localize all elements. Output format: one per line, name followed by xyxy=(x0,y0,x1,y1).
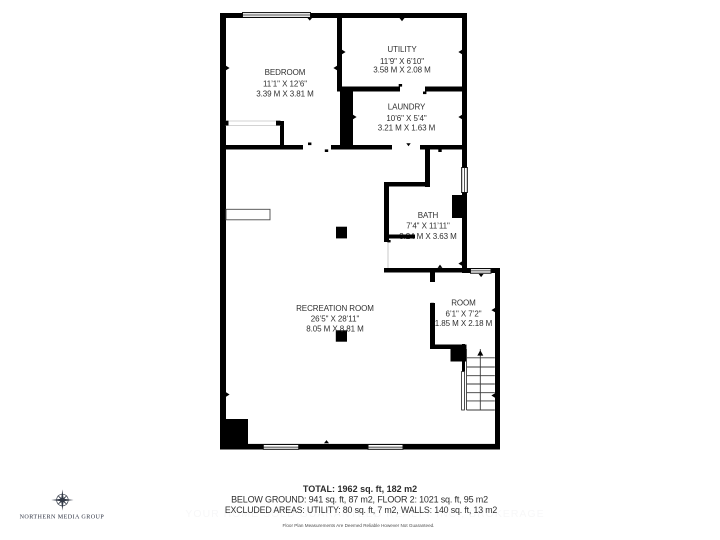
svg-text:10’6" X 5’4": 10’6" X 5’4" xyxy=(386,114,427,123)
svg-text:1.85 M X 2.18 M: 1.85 M X 2.18 M xyxy=(435,319,493,328)
svg-text:BELOW GROUND: 941 sq. ft, 87 m: BELOW GROUND: 941 sq. ft, 87 m2, FLOOR 2… xyxy=(231,495,488,505)
svg-text:3.58 M X 2.08 M: 3.58 M X 2.08 M xyxy=(373,66,431,75)
svg-text:LAUNDRY: LAUNDRY xyxy=(388,103,426,112)
svg-text:8.05 M X 8.81 M: 8.05 M X 8.81 M xyxy=(306,325,364,334)
svg-text:26’5" X 28’11": 26’5" X 28’11" xyxy=(311,315,360,324)
svg-text:ROOM: ROOM xyxy=(451,299,476,308)
svg-text:RECREATION ROOM: RECREATION ROOM xyxy=(296,304,374,313)
svg-text:YOUR HOME SOLD GUARANTEED REAL: YOUR HOME SOLD GUARANTEED REALTY INC., B… xyxy=(185,508,544,520)
svg-text:NORTHERN MEDIA GROUP: NORTHERN MEDIA GROUP xyxy=(20,514,105,520)
svg-text:UTILITY: UTILITY xyxy=(387,45,417,54)
svg-text:3.39 M X 3.81 M: 3.39 M X 3.81 M xyxy=(256,89,314,98)
svg-text:6’1" X 7’2": 6’1" X 7’2" xyxy=(446,309,482,318)
svg-text:11’1" X 12’6": 11’1" X 12’6" xyxy=(263,80,307,89)
svg-text:Floor Plan Measurements Are De: Floor Plan Measurements Are Deemed Relia… xyxy=(283,523,435,528)
svg-text:BEDROOM: BEDROOM xyxy=(265,68,306,77)
svg-text:3.21 M X 1.63 M: 3.21 M X 1.63 M xyxy=(378,123,436,132)
svg-text:TOTAL: 1962 sq. ft, 182 m2: TOTAL: 1962 sq. ft, 182 m2 xyxy=(303,484,417,494)
svg-text:BATH: BATH xyxy=(418,211,439,220)
svg-text:7’4" X 11’11": 7’4" X 11’11" xyxy=(406,222,450,231)
